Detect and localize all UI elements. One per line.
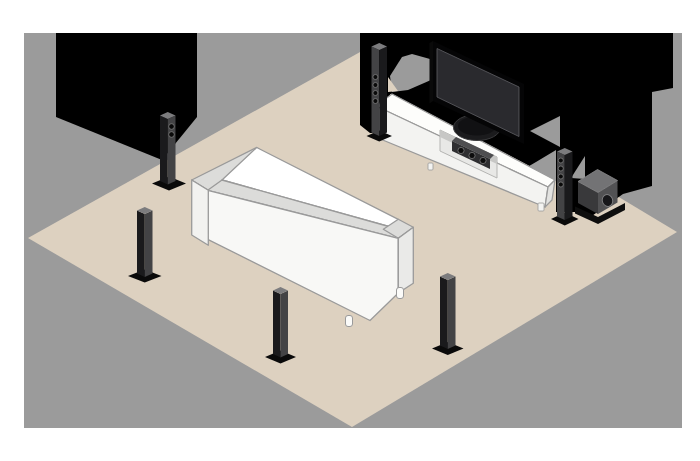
speaker-driver-icon bbox=[169, 132, 175, 138]
bench-foot bbox=[538, 203, 544, 211]
sofa-arm-right-face bbox=[398, 227, 413, 293]
speaker-driver-icon bbox=[373, 91, 378, 96]
speaker-face-right bbox=[448, 277, 456, 350]
home-theater-illustration bbox=[0, 0, 700, 461]
speaker-driver-icon bbox=[558, 158, 563, 163]
tv-side-edge bbox=[430, 41, 434, 104]
sofa-foot bbox=[346, 316, 353, 327]
center-driver-icon bbox=[458, 147, 464, 153]
isometric-scene bbox=[0, 0, 700, 461]
sofa-arm-left-face bbox=[192, 180, 209, 245]
center-driver-icon bbox=[469, 152, 475, 158]
center-driver-icon bbox=[480, 157, 486, 163]
speaker-driver-icon bbox=[558, 174, 563, 179]
speaker-face-left bbox=[137, 211, 145, 278]
bench-foot bbox=[428, 163, 433, 170]
sofa-foot bbox=[397, 288, 404, 299]
speaker-face-right bbox=[281, 291, 289, 358]
speaker-face-right bbox=[145, 211, 153, 278]
speaker-driver-icon bbox=[558, 182, 563, 187]
speaker-face-left bbox=[273, 291, 281, 358]
speaker-driver-icon bbox=[373, 75, 378, 80]
speaker-driver-icon bbox=[373, 99, 378, 104]
speaker-face-left bbox=[440, 277, 448, 350]
speaker-driver-icon bbox=[558, 166, 563, 171]
speaker-face-left bbox=[160, 116, 168, 185]
speaker-face-right bbox=[379, 47, 387, 137]
speaker-face-right bbox=[565, 152, 573, 221]
speaker-driver-icon bbox=[169, 124, 175, 130]
speaker-driver-icon bbox=[373, 83, 378, 88]
